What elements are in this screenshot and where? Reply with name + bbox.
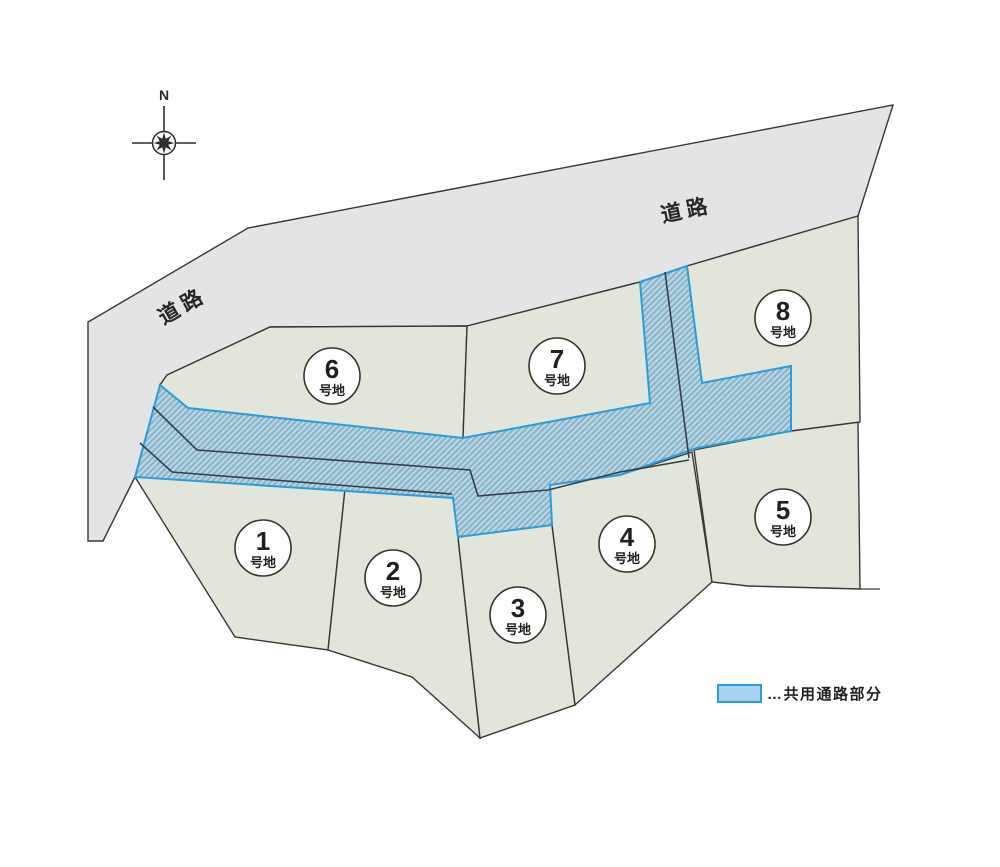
- plot-5-number: 5: [776, 495, 790, 525]
- plot-6-suffix: 号地: [319, 383, 345, 398]
- plot-7-label: 7 号地: [529, 338, 585, 394]
- plot-4-suffix: 号地: [614, 551, 640, 566]
- plot-8-number: 8: [776, 296, 790, 326]
- plot-7-number: 7: [550, 344, 564, 374]
- plot-5-suffix: 号地: [770, 524, 796, 539]
- plot-4-label: 4 号地: [599, 516, 655, 572]
- plot-2-suffix: 号地: [380, 585, 406, 600]
- plot-7-suffix: 号地: [544, 373, 570, 388]
- compass: N: [132, 87, 196, 180]
- legend-swatch: [718, 685, 761, 702]
- plot-1-number: 1: [256, 526, 270, 556]
- plot-3-suffix: 号地: [505, 622, 531, 637]
- plot-3-number: 3: [511, 593, 525, 623]
- plot-4-number: 4: [620, 522, 635, 552]
- legend: …共用通路部分: [718, 685, 883, 703]
- legend-label: …共用通路部分: [767, 685, 883, 703]
- plot-1-label: 1 号地: [235, 520, 291, 576]
- plot-6-label: 6 号地: [304, 348, 360, 404]
- plot-1-suffix: 号地: [250, 555, 276, 570]
- compass-star-icon: [154, 133, 175, 154]
- plot-6-number: 6: [325, 354, 339, 384]
- plot-2-label: 2 号地: [365, 550, 421, 606]
- north-label: N: [159, 87, 169, 103]
- plot-2-number: 2: [386, 556, 400, 586]
- plot-8-suffix: 号地: [770, 325, 796, 340]
- plot-3-label: 3 号地: [490, 587, 546, 643]
- site-plan-svg: 道路 道路 1 号地 2 号地 3 号地 4 号地 5 号地 6 号地 7 号地…: [0, 0, 1000, 867]
- plot-5-label: 5 号地: [755, 489, 811, 545]
- plot-8-label: 8 号地: [755, 290, 811, 346]
- plot-4-area: [550, 452, 712, 705]
- site-plan-map: 道路 道路 1 号地 2 号地 3 号地 4 号地 5 号地 6 号地 7 号地…: [0, 0, 1000, 867]
